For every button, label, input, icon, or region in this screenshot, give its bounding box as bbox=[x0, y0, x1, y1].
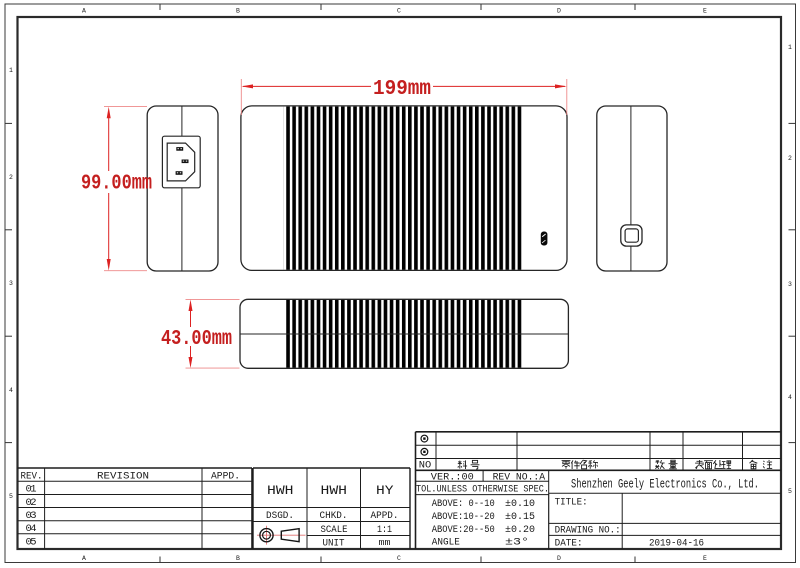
svg-text:DATE:: DATE: bbox=[555, 537, 583, 549]
svg-text:C: C bbox=[397, 8, 401, 15]
svg-text:SCALE: SCALE bbox=[321, 524, 348, 536]
svg-text:D: D bbox=[557, 555, 561, 562]
svg-text:04: 04 bbox=[26, 523, 37, 535]
svg-text:±0.20: ±0.20 bbox=[505, 524, 535, 536]
svg-text:1: 1 bbox=[788, 44, 792, 51]
svg-text:5: 5 bbox=[788, 488, 792, 495]
svg-text:1:1: 1:1 bbox=[377, 524, 392, 536]
svg-text:TITLE:: TITLE: bbox=[555, 496, 588, 508]
svg-text:VER.:00: VER.:00 bbox=[431, 471, 474, 483]
svg-text:E: E bbox=[703, 8, 707, 15]
svg-text:05: 05 bbox=[26, 537, 37, 549]
svg-text:2019-04-16: 2019-04-16 bbox=[649, 537, 704, 549]
svg-text:4: 4 bbox=[788, 394, 792, 401]
svg-text:B: B bbox=[236, 8, 240, 15]
svg-text:±0.15: ±0.15 bbox=[505, 511, 535, 523]
svg-text:E: E bbox=[703, 555, 707, 562]
svg-text:3: 3 bbox=[788, 281, 792, 288]
svg-text:2: 2 bbox=[788, 155, 792, 162]
svg-text:3: 3 bbox=[9, 280, 13, 287]
svg-text:HWH: HWH bbox=[267, 483, 294, 498]
svg-text:mm: mm bbox=[379, 538, 391, 548]
svg-text:4: 4 bbox=[9, 387, 13, 394]
svg-text:REV.: REV. bbox=[21, 471, 43, 483]
svg-text:ANGLE: ANGLE bbox=[432, 536, 460, 548]
svg-text:A: A bbox=[82, 555, 86, 562]
svg-text:02: 02 bbox=[26, 497, 37, 509]
svg-text:01: 01 bbox=[26, 484, 37, 496]
svg-text:D: D bbox=[557, 8, 561, 15]
svg-text:±3°: ±3° bbox=[505, 536, 529, 548]
svg-text:199mm: 199mm bbox=[373, 77, 431, 101]
svg-text:Shenzhen Geely Electronics Co.: Shenzhen Geely Electronics Co., Ltd. bbox=[571, 478, 759, 492]
svg-text:NO: NO bbox=[419, 459, 432, 471]
svg-text:43.00mm: 43.00mm bbox=[161, 327, 232, 351]
svg-text:REV NO.:A: REV NO.:A bbox=[493, 471, 546, 483]
svg-text:ABOVE:20--50: ABOVE:20--50 bbox=[432, 524, 495, 536]
svg-text:03: 03 bbox=[26, 510, 37, 522]
svg-text:ABOVE:10--20: ABOVE:10--20 bbox=[432, 511, 495, 523]
svg-text:B: B bbox=[236, 555, 240, 562]
svg-text:UNIT: UNIT bbox=[323, 538, 345, 550]
svg-text:5: 5 bbox=[9, 493, 13, 500]
svg-text:C: C bbox=[397, 555, 401, 562]
svg-text:TOL.UNLESS OTHERWISE SPEC.: TOL.UNLESS OTHERWISE SPEC. bbox=[416, 484, 549, 496]
svg-text:2: 2 bbox=[9, 174, 13, 181]
svg-text:A: A bbox=[82, 8, 86, 15]
svg-text:±0.10: ±0.10 bbox=[505, 498, 535, 510]
svg-text:DRAWING NO.:: DRAWING NO.: bbox=[555, 525, 621, 537]
svg-text:DSGD.: DSGD. bbox=[266, 510, 294, 522]
svg-text:HWH: HWH bbox=[321, 483, 348, 498]
svg-text:ABOVE: 0--10: ABOVE: 0--10 bbox=[432, 498, 495, 510]
svg-text:99.00mm: 99.00mm bbox=[81, 171, 152, 195]
svg-text:HY: HY bbox=[376, 483, 394, 498]
svg-text:APPD.: APPD. bbox=[211, 471, 240, 483]
svg-text:APPD.: APPD. bbox=[371, 510, 399, 522]
svg-text:1: 1 bbox=[9, 67, 13, 74]
svg-text:REVISION: REVISION bbox=[97, 471, 149, 483]
svg-text:CHKD.: CHKD. bbox=[320, 510, 348, 522]
